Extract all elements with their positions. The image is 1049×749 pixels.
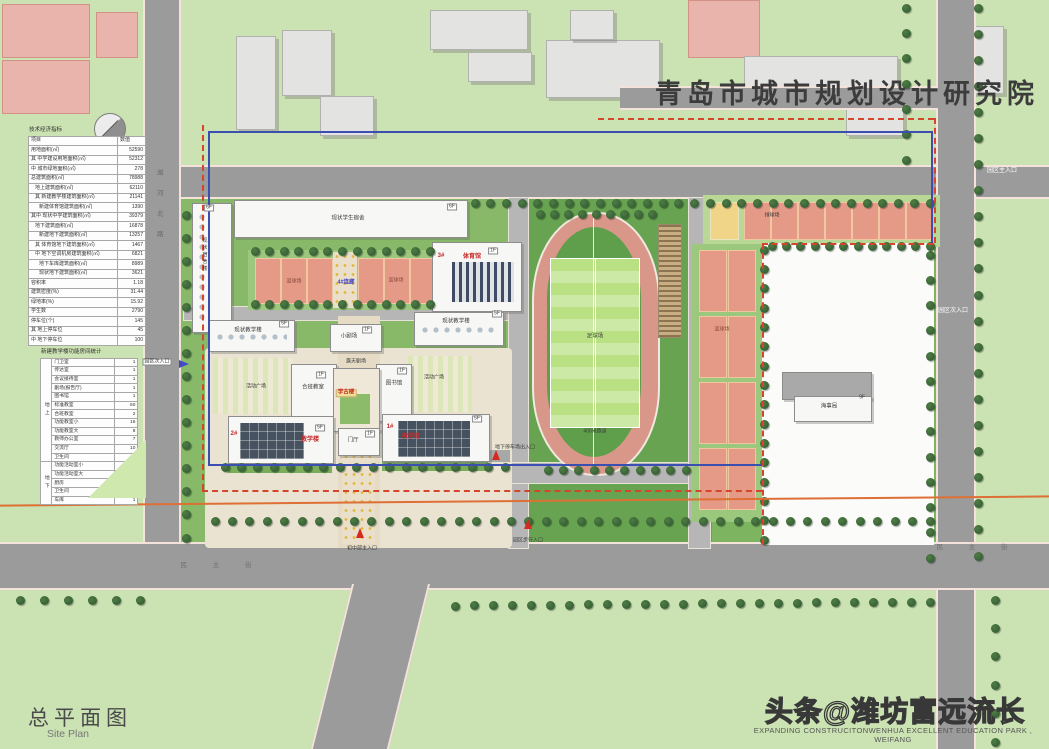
entrance-label-junior-high: 初中部主入口 <box>347 547 377 552</box>
label-existing-teaching: 现状教学楼 <box>442 319 470 325</box>
sport-court <box>307 258 333 304</box>
tree-icon <box>974 369 983 378</box>
tree-icon <box>902 54 911 63</box>
institute-title: 青岛市城市规划设计研究院 <box>655 72 1039 111</box>
tree-icon <box>926 503 935 512</box>
tree-icon <box>584 600 593 609</box>
tree-icon <box>974 343 983 352</box>
tree-icon <box>679 600 688 609</box>
road-south <box>0 542 1049 590</box>
tree-icon <box>426 247 435 256</box>
tree-icon <box>769 199 778 208</box>
road-name-west: 潍河北路 <box>155 169 162 251</box>
label-open-theater: 露天剧场 <box>346 360 366 365</box>
indicator-table-title: 技术经济指标 <box>29 128 146 134</box>
floor-tag: 1F <box>362 327 372 334</box>
tree-icon <box>182 464 191 473</box>
tree-icon <box>926 528 935 537</box>
tree-icon <box>760 400 769 409</box>
tree-icon <box>926 554 935 563</box>
tree-icon <box>245 517 254 526</box>
teaching-2-roof <box>240 423 304 459</box>
tree-icon <box>385 517 394 526</box>
tree-icon <box>863 199 872 208</box>
indicator-row: 其 中学建设用地面积(㎡)52312 <box>29 155 146 165</box>
tree-icon <box>926 402 935 411</box>
tree-icon <box>760 478 769 487</box>
tree-icon <box>182 326 191 335</box>
tree-icon <box>926 517 935 526</box>
tree-icon <box>974 134 983 143</box>
tree-icon <box>681 517 690 526</box>
tree-icon <box>333 517 342 526</box>
tree-icon <box>716 517 725 526</box>
bleacher-stand <box>658 224 682 338</box>
tree-icon <box>793 599 802 608</box>
tree-icon <box>641 600 650 609</box>
offsite-building <box>320 96 374 136</box>
tree-icon <box>873 517 882 526</box>
indicator-row: 容积率1.18 <box>29 279 146 289</box>
core-courtyard <box>340 394 370 424</box>
tree-icon <box>594 517 603 526</box>
tree-icon <box>382 247 391 256</box>
tree-icon <box>698 599 707 608</box>
plan-subtitle: Site Plan <box>47 728 89 740</box>
tree-icon <box>760 439 769 448</box>
tree-icon <box>622 600 631 609</box>
tree-icon <box>182 534 191 543</box>
indicator-row: 其 体育馆地下建筑面积(㎡)1467 <box>29 241 146 251</box>
tree-icon <box>559 517 568 526</box>
tree-icon <box>16 596 25 605</box>
road-east <box>936 0 976 749</box>
tree-icon <box>926 276 935 285</box>
indicator-row: 建筑密度(%)31.44 <box>29 288 146 298</box>
room-row: 标准教室60 <box>41 401 138 410</box>
tree-icon <box>182 349 191 358</box>
tree-icon <box>338 300 347 309</box>
offsite-building <box>430 10 528 50</box>
tree-icon <box>902 156 911 165</box>
tree-icon <box>910 199 919 208</box>
tree-icon <box>564 210 573 219</box>
tree-icon <box>182 280 191 289</box>
tree-icon <box>974 186 983 195</box>
tree-icon <box>298 517 307 526</box>
sport-court <box>771 202 798 240</box>
tree-icon <box>265 247 274 256</box>
tree-icon <box>634 210 643 219</box>
tree-icon <box>437 517 446 526</box>
tree-icon <box>755 599 764 608</box>
tree-icon <box>664 517 673 526</box>
offsite-building <box>282 30 332 96</box>
floor-tag: 1F <box>365 431 375 438</box>
label-teaching-building: 教学楼 <box>301 437 319 443</box>
tree-icon <box>451 602 460 611</box>
tree-icon <box>800 199 809 208</box>
room-table-title: 新建教学楼功能房间统计 <box>41 350 138 356</box>
tree-icon <box>629 517 638 526</box>
tree-icon <box>578 210 587 219</box>
indicator-row: 其 地上停车位45 <box>29 326 146 336</box>
offsite-court <box>688 0 760 58</box>
tree-icon <box>536 210 545 219</box>
entrance-arrow-junior-high <box>356 528 364 538</box>
tree-icon <box>565 601 574 610</box>
tree-icon <box>926 453 935 462</box>
tree-icon <box>620 210 629 219</box>
indicator-col-item: 项目 <box>29 136 118 146</box>
tree-icon <box>382 300 391 309</box>
road-west <box>143 0 181 590</box>
sport-court <box>852 202 879 240</box>
boundary-red-left <box>202 125 204 490</box>
tree-icon <box>926 301 935 310</box>
label-existing-teaching: 现状教学楼 <box>234 328 262 334</box>
tree-icon <box>648 210 657 219</box>
label-basketball: 篮球场 <box>388 279 403 284</box>
tree-icon <box>182 372 191 381</box>
tree-icon <box>627 199 636 208</box>
entrance-label-main: 园区主入口 <box>987 168 1017 174</box>
tree-icon <box>760 420 769 429</box>
entrance-arrow-pedestrian <box>524 519 532 529</box>
tree-icon <box>592 210 601 219</box>
room-row: 功能教室小16 <box>41 418 138 427</box>
floor-tag: 5F <box>492 311 502 318</box>
tree-icon <box>991 624 1000 633</box>
indicator-row: 地下建筑面积(㎡)16878 <box>29 222 146 232</box>
tree-icon <box>471 199 480 208</box>
tree-icon <box>878 199 887 208</box>
tree-icon <box>784 199 793 208</box>
sport-court <box>255 258 281 304</box>
label-entrance-hall: 门厅 <box>347 438 358 444</box>
tree-icon <box>760 304 769 313</box>
tree-icon <box>603 600 612 609</box>
boundary-red-top <box>598 118 934 120</box>
tree-icon <box>590 466 599 475</box>
tree-icon <box>367 517 376 526</box>
sport-court <box>728 382 756 444</box>
tree-icon <box>549 199 558 208</box>
indicator-row: 地下车库建筑面积(㎡)8989 <box>29 260 146 270</box>
tree-icon <box>182 303 191 312</box>
tree-icon <box>991 596 1000 605</box>
tree-icon <box>760 265 769 274</box>
tree-icon <box>821 517 830 526</box>
indicator-row: 地上建筑面积(㎡)62110 <box>29 184 146 194</box>
tree-icon <box>722 199 731 208</box>
tree-icon <box>974 317 983 326</box>
tree-icon <box>182 395 191 404</box>
tree-icon <box>280 247 289 256</box>
gym-skylights <box>452 262 514 302</box>
label-combined-classroom: 合班教室 <box>302 385 324 391</box>
tree-icon <box>396 300 405 309</box>
room-row: 合班教室2 <box>41 410 138 419</box>
tree-icon <box>974 160 983 169</box>
boundary-blue-left <box>208 131 210 465</box>
indicator-row: 中 地下停车位100 <box>29 336 146 346</box>
tree-icon <box>309 300 318 309</box>
tree-icon <box>605 466 614 475</box>
offsite-court <box>96 12 138 58</box>
tree-icon <box>136 596 145 605</box>
floor-tag: 5F <box>315 425 325 432</box>
tree-icon <box>40 596 49 605</box>
tree-icon <box>974 525 983 534</box>
tree-icon <box>546 601 555 610</box>
sport-court <box>699 382 727 444</box>
tree-icon <box>891 517 900 526</box>
indicator-panel: 技术经济指标 项目 数值 用地面积(㎡)52590其 中学建设用地面积(㎡)52… <box>28 128 146 346</box>
tree-icon <box>991 681 1000 690</box>
sport-court <box>728 316 756 378</box>
tree-icon <box>974 4 983 13</box>
road-south-branch <box>310 584 430 749</box>
tree-icon <box>508 601 517 610</box>
floor-tag: 9F <box>859 396 865 401</box>
activity-plaza-east <box>408 356 472 412</box>
tree-icon <box>228 517 237 526</box>
floor-tag: 1F <box>316 372 326 379</box>
sport-court <box>728 250 756 312</box>
label-volleyball: 排球场 <box>764 214 779 219</box>
site-plan-canvas: 现状学生宿舍6F6F现状宿舍楼篮球场篮球场4#连廊3#体育馆1F现状教学楼5F现… <box>0 0 1049 749</box>
tree-icon <box>760 381 769 390</box>
tree-icon <box>753 199 762 208</box>
sport-court <box>699 448 727 510</box>
floor-tag: 1F <box>488 248 498 255</box>
leaf-decoration <box>88 440 146 498</box>
tree-icon <box>323 300 332 309</box>
sport-court <box>358 258 384 304</box>
tree-icon <box>646 517 655 526</box>
tree-icon <box>666 466 675 475</box>
sport-court <box>825 202 852 240</box>
tree-icon <box>760 362 769 371</box>
boundary-red-maritime-top <box>762 243 934 245</box>
tree-icon <box>490 517 499 526</box>
offsite-building <box>236 36 276 130</box>
tree-icon <box>760 516 769 525</box>
tree-icon <box>659 199 668 208</box>
tree-icon <box>660 600 669 609</box>
sport-court <box>699 250 727 312</box>
tree-icon <box>472 517 481 526</box>
tree-icon <box>367 247 376 256</box>
tree-icon <box>315 517 324 526</box>
tree-icon <box>734 517 743 526</box>
tree-icon <box>559 466 568 475</box>
indicator-row: 新建地下建筑面积(㎡)13257 <box>29 231 146 241</box>
tree-icon <box>803 517 812 526</box>
tree-icon <box>974 499 983 508</box>
indicator-row: 新建体育馆建筑面积(㎡)1390 <box>29 203 146 213</box>
tree-icon <box>411 247 420 256</box>
indicator-table: 项目 数值 用地面积(㎡)52590其 中学建设用地面积(㎡)52312中 城市… <box>28 136 146 346</box>
tree-icon <box>527 601 536 610</box>
tree-icon <box>455 517 464 526</box>
label-existing-dorm: 现状学生宿舍 <box>331 216 364 222</box>
floor-tag: 5F <box>472 416 482 423</box>
label-small-theater: 小剧场 <box>341 334 358 340</box>
tree-icon <box>974 395 983 404</box>
entrance-label-parking: 地下停车场出入口 <box>495 446 535 451</box>
volleyball-court-yellow <box>710 202 739 240</box>
tree-icon <box>760 536 769 545</box>
label-corridor-4: 4#连廊 <box>337 280 354 286</box>
sport-court <box>728 448 756 510</box>
label-library: 图书馆 <box>386 381 403 387</box>
tree-icon <box>926 352 935 361</box>
tree-icon <box>396 247 405 256</box>
indicator-row: 停车位(个)145 <box>29 317 146 327</box>
offsite-building <box>468 52 532 82</box>
tree-icon <box>182 257 191 266</box>
sport-court <box>699 316 727 378</box>
tree-icon <box>706 199 715 208</box>
tree-icon <box>612 517 621 526</box>
tree-icon <box>338 247 347 256</box>
offsite-court <box>2 60 90 114</box>
tree-icon <box>182 211 191 220</box>
tree-icon <box>902 4 911 13</box>
tree-icon <box>816 199 825 208</box>
tree-icon <box>812 598 821 607</box>
football-pitch <box>550 258 640 428</box>
tree-icon <box>769 517 778 526</box>
tree-icon <box>411 300 420 309</box>
tree-icon <box>265 300 274 309</box>
tree-icon <box>974 238 983 247</box>
entrance-label-pedestrian: 园区步行入口 <box>513 539 543 544</box>
tree-icon <box>182 510 191 519</box>
tree-icon <box>263 517 272 526</box>
tree-icon <box>251 247 260 256</box>
watermark-text: 头条@潍坊富远流长 <box>742 690 1048 730</box>
teaching-east-columns <box>420 325 498 335</box>
tree-icon <box>760 284 769 293</box>
tree-icon <box>907 598 916 607</box>
tree-icon <box>856 517 865 526</box>
label-basketball: 篮球场 <box>714 328 729 333</box>
tree-icon <box>926 478 935 487</box>
tree-icon <box>974 30 983 39</box>
boundary-blue-top <box>208 131 933 133</box>
tree-icon <box>682 466 691 475</box>
sport-court <box>906 202 933 240</box>
tree-icon <box>926 251 935 260</box>
label-teaching-building: 教学楼 <box>402 434 420 440</box>
tree-icon <box>674 199 683 208</box>
tree-icon <box>620 466 629 475</box>
tree-icon <box>596 199 605 208</box>
room-row: 地上门卫室1 <box>41 358 138 367</box>
room-row: 功能教室大8 <box>41 427 138 436</box>
tree-icon <box>470 601 479 610</box>
label-maritime-bureau: 海事局 <box>821 404 838 410</box>
tree-icon <box>926 377 935 386</box>
entrance-label-secondary: 园区次入口 <box>142 359 171 366</box>
entrance-arrow-secondary <box>179 360 189 368</box>
tree-icon <box>774 599 783 608</box>
entrance-arrow-parking <box>492 450 500 460</box>
tree-icon <box>751 517 760 526</box>
tree-icon <box>974 552 983 561</box>
sport-court <box>798 202 825 240</box>
tree-icon <box>847 199 856 208</box>
tree-icon <box>565 199 574 208</box>
tree-icon <box>211 517 220 526</box>
room-row: 图书馆1 <box>41 393 138 402</box>
tree-icon <box>323 247 332 256</box>
tree-icon <box>737 199 746 208</box>
tree-icon <box>309 247 318 256</box>
indicator-row: 总建筑面积(㎡)78988 <box>29 174 146 184</box>
indicator-row: 现状地下建筑面积(㎡)3621 <box>29 269 146 279</box>
tree-icon <box>636 466 645 475</box>
tree-icon <box>643 199 652 208</box>
tree-icon <box>251 300 260 309</box>
boundary-red-maritime-left <box>762 243 764 545</box>
tree-icon <box>974 421 983 430</box>
indicator-row: 其中 现状中学建筑面积(㎡)39379 <box>29 212 146 222</box>
label-building-3: 3# <box>438 253 445 259</box>
tree-icon <box>518 199 527 208</box>
label-existing-dorm-left: 现状宿舍楼 <box>202 238 207 273</box>
tree-icon <box>112 596 121 605</box>
tree-icon <box>974 291 983 300</box>
tree-icon <box>280 300 289 309</box>
road-north <box>160 165 1049 199</box>
tree-icon <box>64 596 73 605</box>
tree-icon <box>926 427 935 436</box>
tree-icon <box>831 199 840 208</box>
boundary-red-right <box>934 118 936 243</box>
indicator-row: 中 城市绿地面积(㎡)278 <box>29 165 146 175</box>
tree-icon <box>182 441 191 450</box>
tree-icon <box>888 598 897 607</box>
offsite-building <box>570 10 614 40</box>
tree-icon <box>974 447 983 456</box>
tree-icon <box>486 199 495 208</box>
watermark-subtext: EXPANDING CONSTRUCITONWENHUA EXCELLENT E… <box>738 726 1048 744</box>
tree-icon <box>402 517 411 526</box>
tree-icon <box>736 599 745 608</box>
tree-icon <box>831 598 840 607</box>
room-row: 剧场(报告厅)1 <box>41 384 138 393</box>
indicator-row: 其 新建教学楼建筑面积(㎡)21141 <box>29 193 146 203</box>
room-row: 会议接待室1 <box>41 375 138 384</box>
tree-icon <box>533 199 542 208</box>
tree-icon <box>489 601 498 610</box>
tree-icon <box>580 199 589 208</box>
tree-icon <box>974 212 983 221</box>
label-gym: 体育馆 <box>463 254 481 260</box>
tree-icon <box>353 300 362 309</box>
label-activity-plaza: 活动广场 <box>246 385 266 390</box>
tree-icon <box>699 517 708 526</box>
tree-icon <box>908 517 917 526</box>
tree-icon <box>544 466 553 475</box>
room-row: 传达室1 <box>41 367 138 376</box>
tree-icon <box>502 199 511 208</box>
label-basketball: 篮球场 <box>286 280 301 285</box>
